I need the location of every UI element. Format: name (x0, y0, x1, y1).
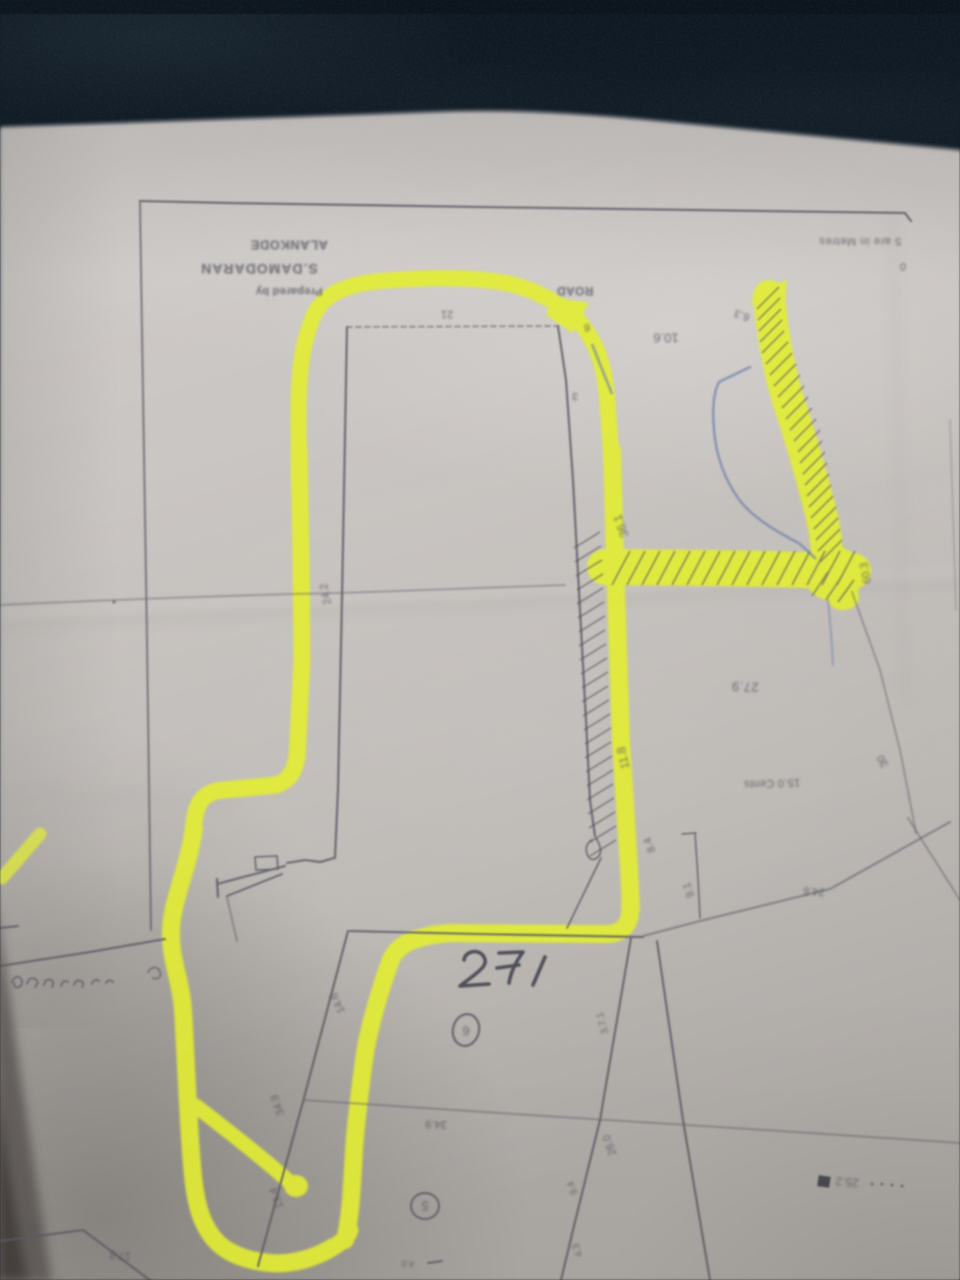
svg-text:5: 5 (421, 1198, 430, 1214)
svg-text:3: 3 (572, 390, 578, 402)
svg-text:S.DAMODARAN: S.DAMODARAN (200, 261, 318, 277)
svg-text:10.6: 10.6 (653, 331, 678, 346)
svg-text:24.6: 24.6 (803, 884, 825, 898)
svg-text:15.0 Cents: 15.0 Cents (744, 776, 801, 790)
svg-text:6: 6 (462, 1023, 471, 1039)
svg-text:ROAD: ROAD (557, 284, 594, 298)
svg-text:0: 0 (900, 260, 906, 272)
svg-text:6: 6 (584, 321, 590, 333)
svg-text:27.9: 27.9 (731, 679, 759, 695)
svg-text:ALANKODE: ALANKODE (250, 238, 328, 253)
svg-text:34.9: 34.9 (425, 1118, 447, 1131)
svg-text:5 are in Metres: 5 are in Metres (819, 235, 901, 247)
svg-text:21: 21 (441, 308, 453, 320)
svg-text:17.8: 17.8 (109, 1248, 131, 1262)
svg-text:4.0: 4.0 (401, 1258, 414, 1269)
svg-text:25.2: 25.2 (834, 1174, 859, 1190)
svg-text:Prepared by: Prepared by (255, 285, 322, 297)
